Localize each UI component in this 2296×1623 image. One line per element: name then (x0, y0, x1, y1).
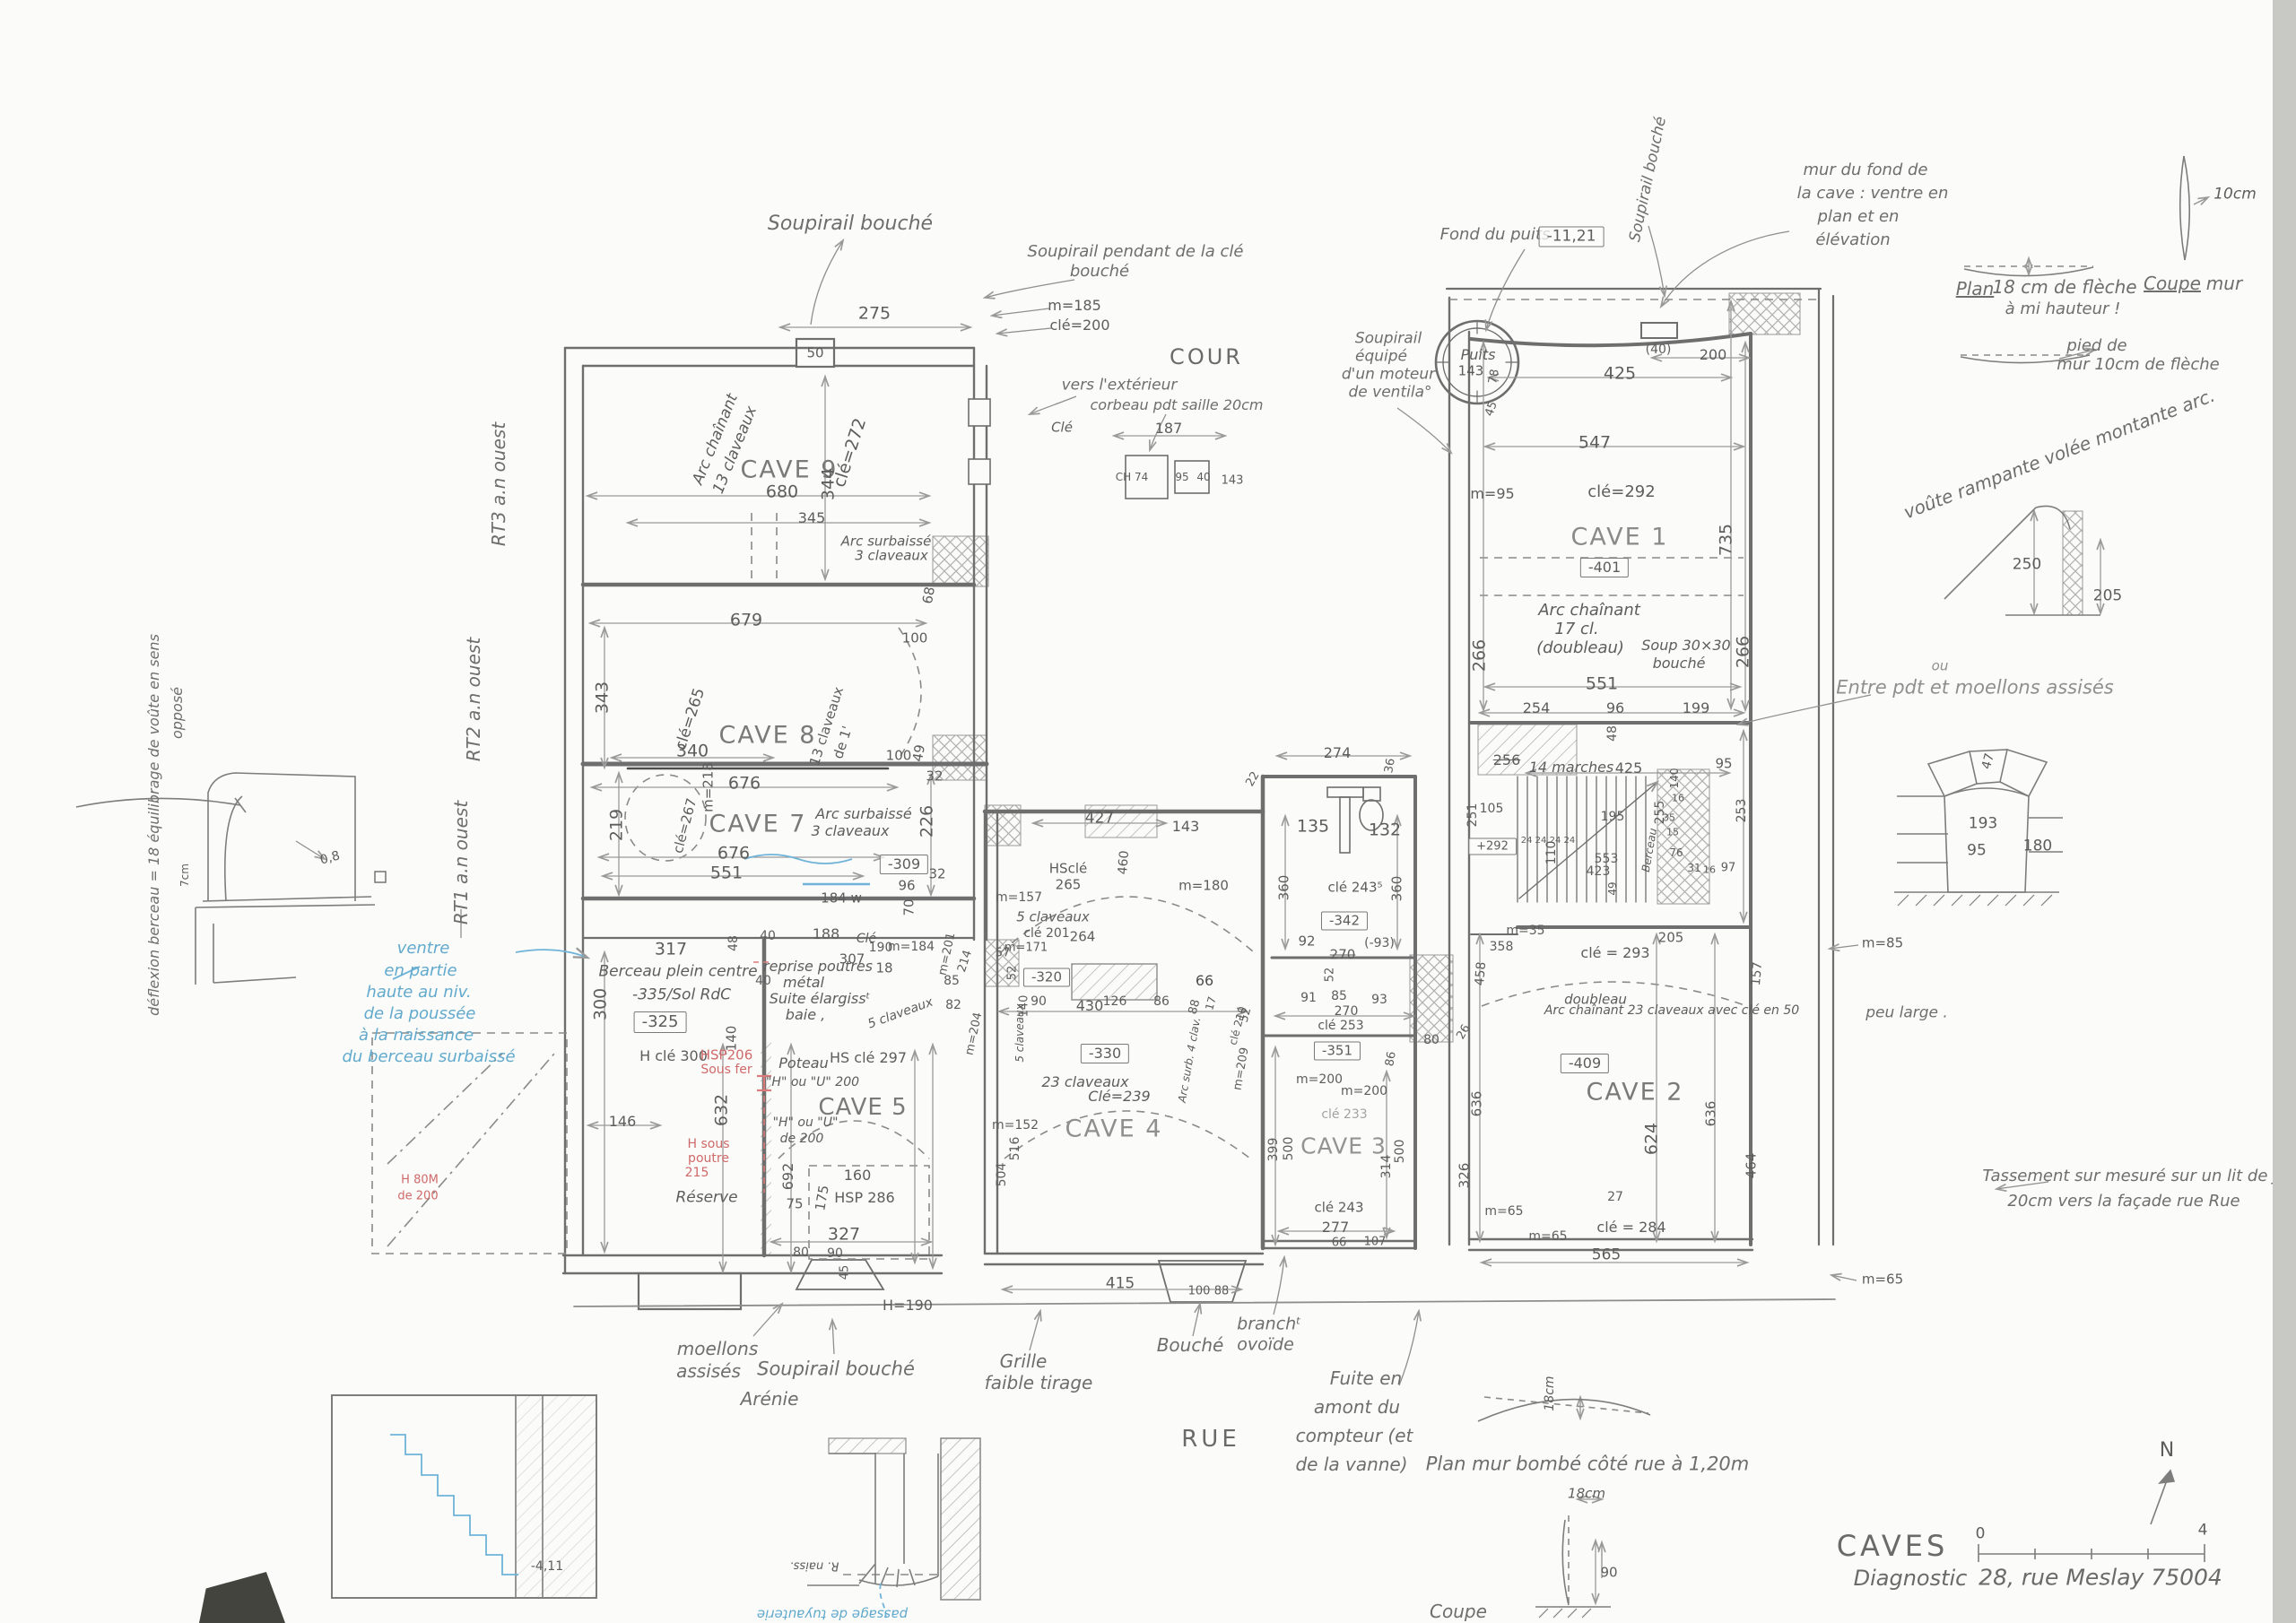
plan-annotation: 40 (760, 930, 776, 942)
plan-annotation: 735 (1718, 524, 1735, 556)
plan-annotation: pied de (2066, 338, 2126, 354)
plan-annotation: 22 (1244, 770, 1262, 789)
plan-annotation: H clé 300 (639, 1049, 708, 1063)
plan-annotation: de la vanne) (1295, 1455, 1407, 1473)
plan-annotation: clé = 293 (1580, 946, 1649, 960)
plan-annotation: Bouché (1157, 1336, 1224, 1354)
plan-annotation: m=152 (992, 1119, 1039, 1132)
plan-annotation: m=204 (964, 1011, 985, 1056)
plan-annotation: à mi hauteur ! (2005, 301, 2121, 317)
plan-annotation: 90 (1031, 995, 1047, 1008)
plan-annotation: 93 (1371, 994, 1387, 1006)
plan-annotation: Réserve (675, 1191, 737, 1206)
plan-annotation: 47 (1980, 752, 1996, 771)
plan-annotation: 326 (1458, 1163, 1472, 1189)
plan-annotation: 78 (1487, 369, 1501, 386)
plan-annotation: RT2 a.n ouest (465, 638, 483, 761)
plan-annotation: 105 (1480, 803, 1504, 815)
plan-annotation: clé=272 (831, 416, 870, 490)
plan-annotation: 270 (1330, 949, 1356, 962)
plan-annotation: Suite élargissᵗ (770, 992, 871, 1006)
plan-annotation: Arc surbaissé (815, 807, 911, 821)
plan-annotation: 140 (1669, 768, 1680, 789)
plan-annotation: 132 (1369, 822, 1401, 839)
plan-annotation: 500 (1394, 1140, 1406, 1164)
street-label: RUE (1181, 1428, 1240, 1451)
plan-annotation: 205 (1658, 932, 1684, 945)
plan-annotation: 52 (1007, 966, 1019, 981)
plan-annotation: 277 (1322, 1220, 1350, 1235)
plan-annotation: m=35 (1506, 924, 1544, 937)
plan-annotation: 92 (1298, 935, 1315, 949)
plan-annotation: 264 (1070, 931, 1096, 944)
plan-annotation: (40) (1646, 343, 1672, 356)
plan-annotation: 95 (1715, 758, 1732, 771)
plan-annotation: 66 (1196, 974, 1213, 988)
plan-annotation: RT1 a.n ouest (452, 801, 470, 924)
plan-annotation: Soupirail bouché (1628, 116, 1669, 244)
plan-annotation: HSP 286 (834, 1191, 894, 1205)
plan-annotation: 86 (1384, 1051, 1398, 1068)
plan-annotation: RT3 a.n ouest (490, 422, 508, 546)
plan-annotation: ventre (397, 941, 450, 957)
plan-annotation: assisés (676, 1362, 741, 1380)
plan-annotation: 274 (1324, 746, 1352, 760)
plan-annotation: CH 74 (1116, 472, 1149, 482)
plan-annotation: 5 claveaux (866, 995, 935, 1030)
plan-annotation: 265 (1056, 879, 1082, 892)
plan-annotation: 7cm (179, 864, 190, 887)
plan-annotation: m=209 (1231, 1046, 1250, 1091)
plan-annotation: (-93) (1364, 937, 1395, 950)
plan-annotation: m=200 (1341, 1085, 1387, 1098)
plan-annotation: clé=292 (1587, 484, 1655, 500)
plan-annotation: 107 (1364, 1237, 1387, 1248)
plan-annotation: 200 (1700, 348, 1727, 362)
plan-annotation: mur du fond de (1803, 162, 1927, 178)
plan-annotation: 345 (798, 511, 826, 525)
plan-annotation: de ventila° (1349, 386, 1432, 401)
room-label-cave-2: CAVE 2 (1587, 1081, 1684, 1105)
plan-annotation: compteur (et (1296, 1427, 1413, 1445)
plan-annotation: Poteau (778, 1056, 829, 1071)
plan-annotation: (doubleau) (1536, 640, 1624, 656)
plan-annotation: 18 cm de flèche (1992, 278, 2136, 296)
plan-annotation: 100 (902, 632, 928, 646)
room-label-cave-1: CAVE 1 (1571, 525, 1669, 550)
plan-annotation: 49 (1607, 881, 1618, 895)
plan-annotation: 553 (1595, 853, 1619, 865)
plan-annotation: opposé (170, 687, 185, 739)
plan-annotation: 516 (1009, 1137, 1022, 1161)
plan-annotation: 35 (1663, 813, 1675, 823)
plan-annotation: -325 (634, 1011, 687, 1033)
plan-annotation: clé 201 (1023, 927, 1069, 940)
plan-annotation: 188 (813, 927, 840, 942)
plan-annotation: HSP206 (700, 1049, 752, 1063)
plan-annotation: Soup 30×30 (1641, 638, 1730, 653)
plan-annotation: 32 (926, 770, 943, 784)
room-label-cave-8: CAVE 8 (719, 724, 817, 748)
plan-annotation: 399 (1267, 1138, 1280, 1162)
plan-annotation: 76 (1669, 847, 1683, 858)
plan-annotation: peu large . (1865, 1006, 1948, 1021)
plan-annotation: 16 (1672, 794, 1684, 803)
plan-annotation: 68 (921, 586, 937, 604)
plan-annotation: 18cm (1544, 1376, 1556, 1410)
plan-annotation: 17 cl. (1554, 621, 1598, 638)
plan-annotation: 423 (1587, 865, 1611, 878)
plan-annotation: 460 (1117, 850, 1131, 875)
plan-annotation: 187 (1155, 421, 1183, 436)
plan-annotation: 415 (1106, 1277, 1135, 1292)
plan-annotation: +292 (1468, 838, 1517, 855)
drawing-subtitle: Diagnostic (1854, 1567, 1968, 1589)
plan-annotation: clé 210 (1228, 1005, 1248, 1046)
plan-annotation: 214 (956, 949, 974, 974)
plan-annotation: de 1' (831, 725, 855, 760)
plan-annotation: Arc surb. 4 clav. (1177, 1017, 1203, 1104)
plan-annotation: corbeau pdt saille 20cm (1090, 398, 1263, 412)
plan-annotation: m=85 (1862, 937, 1903, 950)
plan-annotation: 270 (1335, 1005, 1359, 1018)
plan-annotation: branchᵗ (1237, 1316, 1301, 1333)
plan-annotation: mur 10cm de flèche (2057, 357, 2219, 373)
plan-annotation: 48 (727, 935, 740, 951)
plan-annotation: clé=267 (672, 797, 700, 855)
plan-annotation: 199 (1683, 701, 1710, 716)
plan-annotation: 300 (593, 988, 610, 1020)
plan-annotation: faible tirage (985, 1374, 1093, 1392)
plan-annotation: 57 (996, 948, 1011, 959)
plan-annotation: Berceau (1640, 828, 1658, 873)
plan-annotation: 86 (1153, 995, 1170, 1008)
plan-annotation: Coupe (1430, 1602, 1487, 1620)
plan-annotation: 26 (1455, 1023, 1473, 1042)
drawing-title: CAVES (1837, 1532, 1949, 1560)
plan-annotation: Entre pdt et moellons assisés (1836, 679, 2114, 698)
plan-annotation: 18cm (1568, 1488, 1605, 1501)
plan-annotation: 143 (1172, 820, 1200, 834)
plan-annotation: 340 (676, 743, 709, 760)
plan-annotation: "H" ou "U" 200 (766, 1076, 859, 1089)
plan-annotation: 275 (858, 306, 891, 323)
plan-annotation: 425 (1604, 366, 1636, 383)
plan-annotation: Arc surbaissé (841, 535, 932, 549)
plan-annotation: Coupe (2144, 274, 2201, 292)
plan-annotation: 70 (903, 898, 917, 916)
plan-annotation: 3 claveaux (855, 550, 928, 563)
plan-annotation: 226 (919, 805, 936, 838)
plan-annotation: 85 (1331, 990, 1347, 1002)
plan-annotation: élévation (1815, 232, 1890, 248)
plan-annotation: 0,8 (318, 849, 341, 866)
plan-annotation: 5 claveaux (1016, 911, 1090, 924)
plan-annotation: équipé (1355, 350, 1407, 365)
plan-annotation: bouché (1653, 656, 1706, 671)
plan-annotation: 146 (609, 1115, 637, 1129)
plan-annotation: 314 (1380, 1155, 1393, 1179)
plan-annotation: 254 (1523, 701, 1551, 716)
plan-annotation: passage de tuyauterie (757, 1608, 908, 1621)
plan-annotation: Puits (1461, 348, 1496, 362)
plan-annotation: poutre (688, 1152, 729, 1165)
plan-annotation: -11,21 (1539, 227, 1605, 247)
plan-annotation: HSclé (1049, 863, 1087, 876)
plan-annotation: m=185 (1048, 299, 1101, 313)
plan-annotation: 676 (717, 846, 750, 863)
plan-annotation: -335/Sol RdC (632, 988, 731, 1003)
plan-annotation: "H" ou "U" (773, 1116, 839, 1129)
room-label-cave-4: CAVE 4 (1065, 1117, 1163, 1141)
plan-annotation: 135 (1297, 819, 1329, 836)
plan-annotation: baie , (786, 1008, 825, 1022)
plan-annotation: 317 (655, 942, 687, 959)
plan-annotation: vers l'extérieur (1062, 378, 1178, 394)
plan-annotation: 80 (793, 1246, 809, 1259)
plan-annotation: -342 (1321, 912, 1368, 931)
plan-annotation: 565 (1592, 1248, 1621, 1263)
plan-annotation: 266 (1472, 639, 1489, 672)
plan-annotation: 16 (1703, 865, 1716, 875)
plan-annotation: 193 (1969, 817, 1997, 832)
plan-annotation: 215 (685, 1167, 709, 1179)
plan-annotation: H=190 (883, 1298, 933, 1313)
plan-annotation: 219 (609, 809, 626, 841)
plan-annotation: 256 (1493, 753, 1521, 768)
plan-annotation: 32 (928, 868, 945, 881)
plan-annotation: Clé=239 (1088, 1089, 1150, 1104)
plan-annotation: 636 (1705, 1101, 1718, 1127)
plan-annotation: 36 (1383, 758, 1397, 775)
plan-annotation: 48 (1606, 725, 1619, 742)
plan-annotation: 45 (1483, 400, 1500, 418)
plan-annotation: m=65 (1528, 1230, 1567, 1243)
plan-annotation: 45 (839, 1265, 851, 1280)
plan-annotation: 49 (911, 743, 927, 762)
plan-annotation: 82 (945, 999, 961, 1011)
plan-annotation: 358 (1490, 941, 1514, 953)
plan-annotation: Plan mur bombé côté rue à 1,20m (1426, 1455, 1750, 1474)
plan-annotation: clé 233 (1321, 1108, 1367, 1121)
plan-annotation: Arc chaînant 23 claveaux avec clé en 50 (1544, 1004, 1799, 1017)
plan-annotation: -330 (1081, 1044, 1129, 1063)
plan-annotation: bouché (1070, 264, 1129, 280)
scale-start: 0 (1976, 1527, 1986, 1542)
plan-annotation: 66 (1332, 1237, 1347, 1249)
plan-annotation: m=180 (1178, 880, 1229, 893)
plan-annotation: Fond du puits (1440, 227, 1551, 243)
plan-annotation: 430 (1076, 999, 1104, 1013)
plan-annotation: 15 (1666, 828, 1679, 838)
plan-annotation: m=65 (1484, 1205, 1523, 1218)
plan-annotation: 458 (1474, 961, 1488, 986)
plan-annotation: 253 (1735, 799, 1748, 823)
plan-annotation: de 200 (397, 1191, 438, 1202)
plan-annotation: Soupirail (1355, 332, 1422, 347)
plan-annotation: Soupirail pendant de la clé (1028, 244, 1244, 260)
plan-annotation: m=65 (1862, 1273, 1903, 1287)
plan-annotation: 360 (1391, 876, 1405, 902)
plan-annotation: 160 (844, 1168, 872, 1183)
plan-annotation: H sous (687, 1138, 729, 1150)
plan-annotation: 80 (1423, 1034, 1439, 1046)
plan-annotation: 18 (875, 962, 892, 976)
plan-annotation: m=201 (937, 932, 958, 976)
room-label-cave-3: CAVE 3 (1300, 1135, 1387, 1158)
plan-annotation: Soupirail bouché (757, 1360, 915, 1379)
plan-annotation: 88 (1214, 1286, 1230, 1298)
scanned-floor-plan: Soupirail bouché27550Arc chaînant13 clav… (0, 0, 2296, 1623)
plan-annotation: m=218 (702, 762, 716, 812)
plan-annotation: Clé (1051, 421, 1073, 435)
plan-annotation: -320 (1023, 968, 1070, 987)
courtyard-label: COUR (1170, 346, 1243, 368)
plan-annotation: ovoïde (1237, 1337, 1294, 1354)
plan-annotation: 24 24 24 24 (1521, 837, 1575, 846)
plan-annotation: 52 (1325, 968, 1336, 983)
plan-annotation: 504 (996, 1163, 1008, 1187)
plan-annotation: 180 (2023, 839, 2052, 855)
plan-annotation: -409 (1561, 1054, 1609, 1073)
plan-annotation: m=200 (1296, 1073, 1343, 1086)
plan-annotation: 88 (1187, 998, 1203, 1015)
plan-annotation: 632 (714, 1094, 731, 1126)
plan-annotation: Grille (1000, 1352, 1048, 1370)
plan-annotation: R. naiss. (790, 1560, 839, 1572)
plan-annotation: clé=200 (1049, 318, 1109, 333)
plan-annotation: 126 (1103, 995, 1127, 1008)
plan-annotation: -351 (1314, 1042, 1361, 1061)
plan-annotation: 266 (1735, 636, 1752, 668)
plan-annotation: 343 (595, 681, 612, 714)
plan-annotation: 40 (755, 975, 771, 987)
plan-annotation: 85 (944, 975, 960, 987)
scale-end: 4 (2198, 1523, 2208, 1539)
plan-annotation: clé 243 (1314, 1202, 1363, 1215)
plan-annotation: de 200 (780, 1133, 824, 1145)
plan-annotation: 100 (1188, 1286, 1211, 1298)
plan-annotation: de la poussée (364, 1006, 476, 1022)
plan-annotation: 547 (1578, 435, 1611, 452)
plan-annotation: la cave : ventre en (1797, 186, 1949, 202)
plan-annotation: 157 (1750, 961, 1764, 986)
plan-annotation: 31 (1687, 863, 1700, 873)
plan-annotation: 100 (886, 750, 912, 763)
plan-annotation: 464 (1745, 1153, 1759, 1179)
plan-annotation: haute au niv. (366, 985, 471, 1001)
plan-annotation: 551 (710, 865, 743, 882)
plan-annotation: 676 (728, 776, 761, 793)
plan-annotation: 184 w (821, 892, 862, 906)
plan-annotation: 636 (1471, 1091, 1484, 1117)
plan-annotation: Arc chaînant (1538, 603, 1640, 619)
plan-annotation: reprise poutres (763, 959, 873, 974)
plan-annotation: Tassement sur mesuré sur un lit de joint (1982, 1168, 2296, 1185)
plan-annotation: 251 (1466, 803, 1479, 828)
scanner-edge-strip (2273, 0, 2296, 1623)
plan-annotation: plan et en (1818, 209, 1900, 225)
plan-annotation: 175 (813, 1185, 831, 1212)
plan-annotation: 40 (1196, 472, 1210, 482)
annotation-layer: Soupirail bouché27550Arc chaînant13 clav… (0, 0, 2296, 1623)
plan-annotation: 20cm vers la façade rue Rue (2007, 1193, 2239, 1210)
plan-annotation: 679 (730, 612, 762, 629)
plan-annotation: 96 (1606, 701, 1624, 716)
plan-annotation: m=95 (1470, 487, 1514, 501)
plan-annotation: Fuite en (1330, 1369, 1402, 1387)
plan-annotation: du berceau surbaissé (342, 1049, 515, 1065)
plan-annotation: 95 (1175, 472, 1188, 482)
plan-annotation: 692 (781, 1163, 796, 1191)
plan-annotation: mur (2206, 274, 2242, 292)
plan-annotation: 50 (806, 347, 823, 360)
plan-annotation: voûte rampante volée montante arc. (1901, 386, 2217, 521)
plan-annotation: 96 (898, 880, 915, 893)
plan-annotation: 97 (1721, 863, 1736, 874)
plan-annotation: clé = 284 (1596, 1220, 1665, 1235)
plan-annotation: 95 (1967, 844, 1987, 859)
plan-annotation: Arénie (741, 1390, 799, 1408)
plan-annotation: 360 (1278, 875, 1291, 901)
plan-annotation: clé 253 (1318, 1020, 1363, 1032)
plan-annotation: 143 (1222, 475, 1244, 487)
plan-annotation: en partie (384, 963, 457, 979)
north-label: N (2160, 1441, 2174, 1461)
plan-annotation: 90 (827, 1247, 843, 1260)
plan-annotation: Plan (1956, 280, 1995, 298)
plan-annotation: d'un moteur (1342, 368, 1435, 383)
plan-annotation: 551 (1586, 676, 1618, 693)
plan-annotation: -309 (880, 855, 928, 874)
plan-annotation: Berceau plein centre (598, 965, 757, 980)
plan-annotation: 90 (1600, 1567, 1617, 1580)
plan-annotation: 205 (2093, 589, 2122, 604)
plan-annotation: à la naissance (359, 1028, 474, 1044)
plan-annotation: 27 (1607, 1191, 1623, 1203)
plan-annotation: m=157 (996, 891, 1042, 904)
plan-annotation: 427 (1085, 811, 1114, 827)
plan-annotation: m=184 (888, 941, 935, 953)
plan-annotation: -4,11 (531, 1560, 563, 1573)
plan-annotation: métal (783, 976, 824, 990)
plan-annotation: 327 (828, 1227, 860, 1244)
plan-annotation: H 80M (401, 1175, 439, 1186)
plan-annotation: déflexion berceau = 18 équilibrage de vo… (147, 634, 161, 1016)
plan-annotation: 10cm (2213, 187, 2257, 203)
plan-annotation: 91 (1300, 992, 1317, 1004)
plan-annotation: ou (1932, 660, 1949, 673)
plan-annotation: clé 243⁵ (1327, 881, 1382, 895)
plan-annotation: 143 (1458, 365, 1484, 378)
plan-annotation: 250 (2013, 558, 2041, 573)
plan-annotation: 3 claveaux (811, 824, 889, 838)
plan-annotation: Sous fer (700, 1063, 752, 1076)
plan-annotation: 5 claveaux (1014, 1003, 1025, 1062)
plan-annotation: amont du (1314, 1398, 1400, 1416)
room-label-cave-7: CAVE 7 (709, 812, 807, 837)
plan-annotation: 195 (1601, 811, 1625, 823)
plan-annotation: HS clé 297 (830, 1051, 907, 1065)
plan-annotation: m=171 (1004, 942, 1048, 954)
plan-annotation: Soupirail bouché (768, 214, 933, 234)
plan-annotation: 14 marches (1529, 760, 1614, 775)
plan-annotation: 500 (1283, 1137, 1295, 1161)
plan-annotation: 680 (766, 484, 798, 501)
plan-annotation: 425 (1615, 761, 1643, 776)
plan-annotation: 75 (786, 1198, 803, 1211)
plan-annotation: -401 (1580, 558, 1629, 577)
